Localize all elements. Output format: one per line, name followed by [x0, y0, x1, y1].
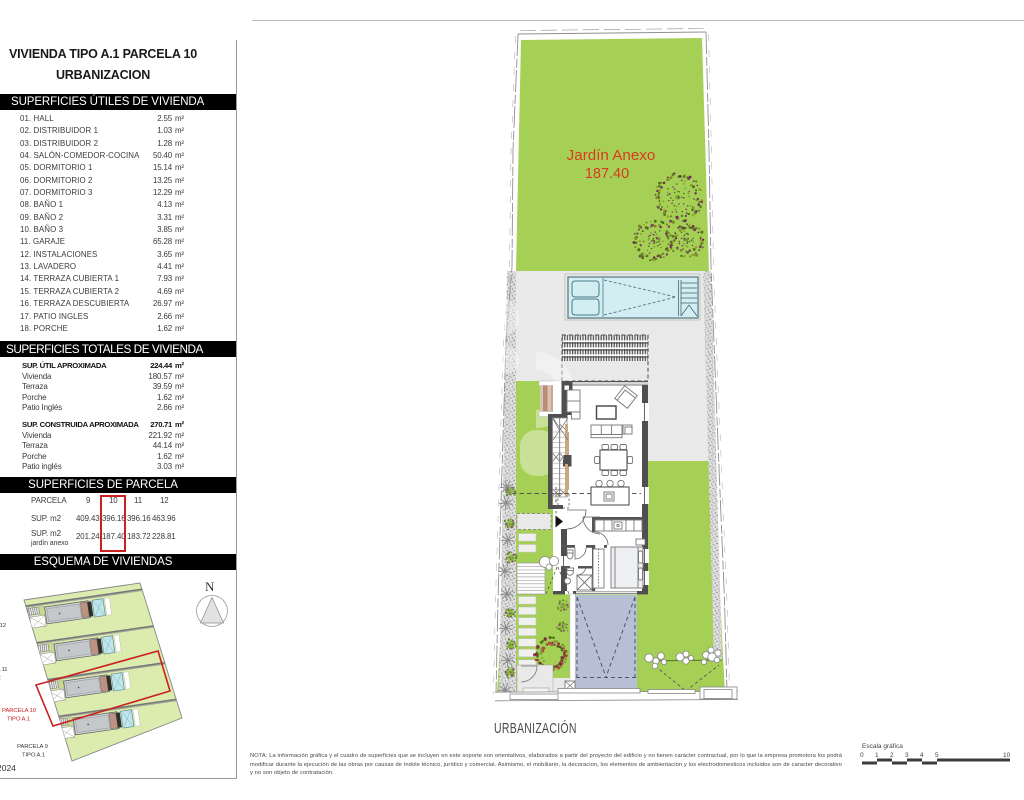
- svg-text:PARCELA 11: PARCELA 11: [0, 667, 8, 673]
- svg-text:4: 4: [920, 752, 924, 759]
- svg-text:PARCELA 9: PARCELA 9: [17, 744, 48, 750]
- svg-text:TIPO A.1: TIPO A.1: [22, 753, 45, 759]
- svg-text:2: 2: [890, 752, 894, 759]
- svg-text:N: N: [205, 579, 215, 594]
- svg-text:TIPO A.1: TIPO A.1: [7, 717, 30, 723]
- svg-text:1: 1: [875, 752, 879, 759]
- svg-text:Jardín Anexo: Jardín Anexo: [567, 147, 656, 164]
- svg-text:PARCELA 12: PARCELA 12: [0, 623, 6, 629]
- svg-text:5: 5: [935, 752, 939, 759]
- svg-text:0: 0: [860, 752, 864, 759]
- svg-text:3: 3: [905, 752, 909, 759]
- svg-text:TIPO A2: TIPO A2: [0, 676, 1, 682]
- svg-text:10: 10: [1003, 752, 1011, 759]
- svg-text:187.40: 187.40: [585, 166, 629, 182]
- svg-text:PARCELA 10: PARCELA 10: [2, 708, 37, 714]
- svg-text:Escala gráfica: Escala gráfica: [862, 743, 903, 750]
